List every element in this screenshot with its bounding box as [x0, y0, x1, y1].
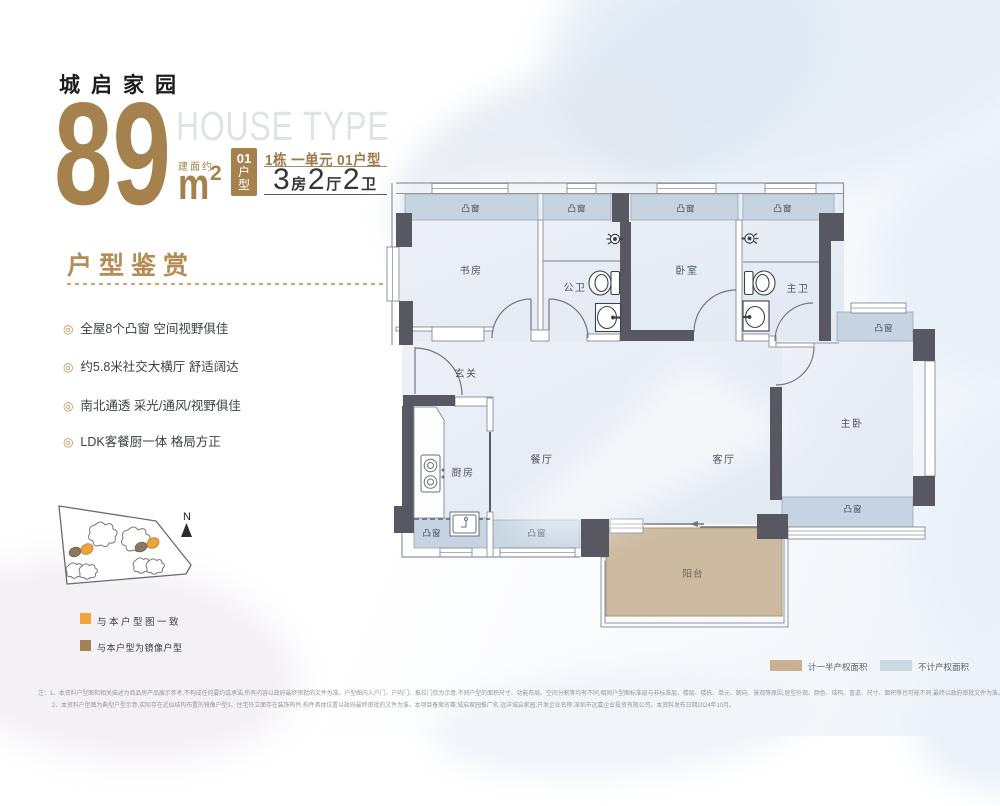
svg-text:主卫: 主卫	[787, 283, 810, 295]
svg-text:书房: 书房	[460, 264, 483, 277]
svg-text:凸窗: 凸窗	[843, 504, 862, 514]
svg-text:阳台: 阳台	[682, 568, 703, 580]
svg-text:凸窗: 凸窗	[422, 528, 441, 538]
svg-text:公卫: 公卫	[564, 283, 587, 294]
svg-text:卧室: 卧室	[676, 264, 699, 277]
svg-text:凸窗: 凸窗	[461, 204, 480, 214]
svg-text:凸窗: 凸窗	[567, 204, 586, 214]
svg-text:凸窗: 凸窗	[773, 204, 792, 214]
svg-text:餐厅: 餐厅	[531, 453, 554, 466]
svg-text:厨房: 厨房	[452, 466, 475, 479]
svg-text:玄关: 玄关	[455, 367, 478, 380]
svg-text:凸窗: 凸窗	[676, 204, 695, 214]
svg-text:主卧: 主卧	[841, 417, 864, 430]
svg-text:客厅: 客厅	[713, 453, 736, 466]
svg-text:凸窗: 凸窗	[874, 323, 893, 333]
